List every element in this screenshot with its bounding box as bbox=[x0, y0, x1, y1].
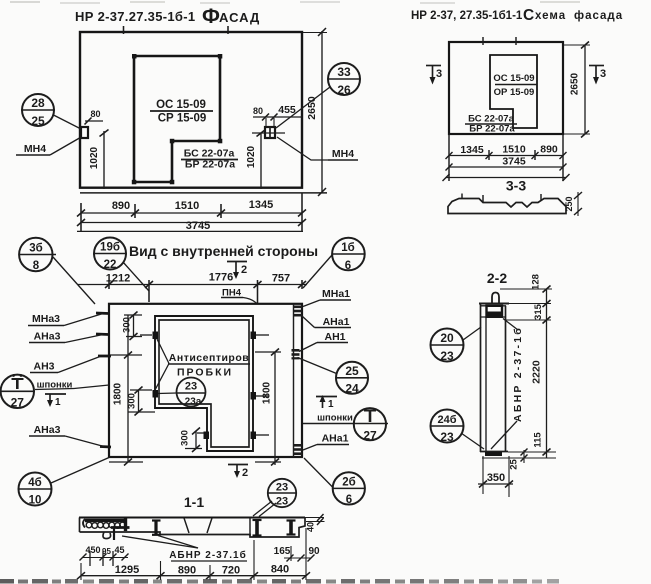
svg-text:24б: 24б bbox=[437, 414, 456, 426]
svg-text:1020: 1020 bbox=[246, 145, 257, 168]
svg-text:25: 25 bbox=[345, 364, 359, 378]
svg-text:хема: хема bbox=[535, 10, 566, 22]
svg-text:3б: 3б bbox=[29, 243, 43, 255]
svg-text:ОС 15-09: ОС 15-09 bbox=[493, 73, 534, 84]
svg-text:757: 757 bbox=[272, 273, 290, 285]
svg-text:3745: 3745 bbox=[186, 220, 210, 232]
svg-text:1345: 1345 bbox=[249, 199, 273, 211]
svg-text:25: 25 bbox=[31, 114, 45, 128]
svg-text:1295: 1295 bbox=[115, 564, 139, 576]
svg-text:1800: 1800 bbox=[262, 381, 273, 404]
svg-text:1-1: 1-1 bbox=[184, 494, 204, 510]
svg-text:С: С bbox=[523, 7, 534, 24]
svg-text:23: 23 bbox=[276, 496, 288, 508]
svg-text:300: 300 bbox=[122, 317, 133, 333]
svg-text:АНа1: АНа1 bbox=[322, 433, 349, 445]
svg-text:165: 165 bbox=[274, 546, 291, 557]
svg-text:25: 25 bbox=[509, 459, 520, 470]
svg-text:1776: 1776 bbox=[209, 272, 233, 284]
svg-text:450: 450 bbox=[85, 545, 100, 555]
svg-text:128: 128 bbox=[531, 274, 542, 290]
svg-text:АБНР 2-37-1б: АБНР 2-37-1б bbox=[512, 326, 524, 422]
svg-text:40: 40 bbox=[306, 522, 316, 532]
svg-text:3745: 3745 bbox=[502, 156, 526, 168]
svg-text:720: 720 bbox=[222, 565, 240, 577]
svg-text:80: 80 bbox=[253, 106, 263, 116]
svg-text:300: 300 bbox=[127, 393, 138, 409]
svg-text:НР 2-37.27.35-1б-1: НР 2-37.27.35-1б-1 bbox=[75, 9, 195, 24]
svg-text:6: 6 bbox=[346, 494, 352, 506]
svg-text:1510: 1510 bbox=[175, 200, 199, 212]
svg-text:10: 10 bbox=[29, 495, 42, 507]
svg-text:1212: 1212 bbox=[106, 273, 130, 285]
svg-text:МНа1: МНа1 bbox=[322, 288, 350, 300]
svg-text:3: 3 bbox=[436, 68, 442, 80]
svg-text:АБНР 2-37.1б: АБНР 2-37.1б bbox=[169, 549, 247, 561]
svg-text:23: 23 bbox=[276, 482, 288, 494]
svg-text:23а: 23а bbox=[185, 397, 202, 408]
svg-text:23: 23 bbox=[440, 430, 454, 444]
svg-text:1510: 1510 bbox=[502, 144, 526, 156]
svg-text:МН4: МН4 bbox=[24, 143, 46, 155]
svg-text:26: 26 bbox=[337, 83, 351, 97]
svg-text:2б: 2б bbox=[342, 477, 356, 489]
svg-text:2220: 2220 bbox=[531, 360, 543, 384]
svg-text:ОС 15-09: ОС 15-09 bbox=[156, 99, 206, 111]
svg-text:19б: 19б bbox=[100, 242, 120, 254]
svg-text:6: 6 bbox=[345, 260, 351, 272]
svg-text:Вид с внутренней стороны: Вид с внутренней стороны bbox=[129, 243, 318, 259]
svg-text:27: 27 bbox=[363, 429, 377, 443]
svg-text:23: 23 bbox=[185, 381, 197, 393]
svg-text:33: 33 bbox=[337, 65, 351, 79]
svg-text:23: 23 bbox=[440, 349, 454, 363]
svg-text:4б: 4б bbox=[28, 477, 42, 489]
svg-text:22: 22 bbox=[104, 259, 117, 271]
svg-text:АН1: АН1 bbox=[324, 331, 345, 343]
svg-text:3: 3 bbox=[600, 68, 606, 80]
svg-text:БР 22-07а: БР 22-07а bbox=[469, 124, 515, 135]
svg-text:АНа3: АНа3 bbox=[34, 331, 61, 343]
svg-text:350: 350 bbox=[487, 472, 505, 484]
svg-text:1б: 1б bbox=[341, 242, 355, 254]
svg-text:1345: 1345 bbox=[460, 144, 484, 156]
svg-text:28: 28 bbox=[31, 96, 45, 110]
svg-text:шпонки: шпонки bbox=[317, 413, 353, 424]
svg-text:890: 890 bbox=[540, 144, 558, 156]
svg-text:840: 840 bbox=[271, 564, 289, 576]
svg-text:МН4: МН4 bbox=[332, 148, 354, 160]
svg-text:АНа1: АНа1 bbox=[323, 316, 350, 328]
svg-text:1020: 1020 bbox=[89, 146, 100, 169]
svg-text:24: 24 bbox=[345, 382, 359, 396]
svg-text:3-3: 3-3 bbox=[506, 178, 526, 194]
svg-text:СР 15-09: СР 15-09 bbox=[158, 113, 207, 125]
svg-text:фасада: фасада bbox=[574, 10, 623, 22]
svg-text:МНа3: МНа3 bbox=[32, 313, 60, 325]
svg-text:890: 890 bbox=[112, 200, 130, 212]
svg-text:1: 1 bbox=[55, 397, 61, 408]
svg-text:115: 115 bbox=[533, 432, 544, 448]
svg-text:2: 2 bbox=[242, 467, 248, 479]
svg-text:890: 890 bbox=[178, 565, 196, 577]
svg-text:Антисептиров: Антисептиров bbox=[169, 352, 249, 364]
svg-text:НР 2-37, 27.35-1б1-1: НР 2-37, 27.35-1б1-1 bbox=[411, 10, 523, 22]
svg-text:Ф: Ф bbox=[202, 5, 220, 28]
svg-text:АНа3: АНа3 bbox=[34, 424, 61, 436]
svg-text:АСАД: АСАД bbox=[219, 10, 260, 25]
svg-text:2: 2 bbox=[241, 264, 247, 276]
svg-text:1800: 1800 bbox=[113, 382, 124, 405]
svg-text:ОР 15-09: ОР 15-09 bbox=[494, 87, 535, 98]
svg-text:8: 8 bbox=[33, 260, 40, 272]
svg-text:2650: 2650 bbox=[570, 72, 581, 95]
svg-text:27: 27 bbox=[11, 396, 25, 410]
svg-text:2-2: 2-2 bbox=[487, 270, 507, 286]
svg-text:250: 250 bbox=[564, 196, 574, 211]
svg-text:80: 80 bbox=[90, 109, 100, 119]
svg-text:2650: 2650 bbox=[306, 96, 318, 120]
svg-text:315: 315 bbox=[533, 303, 544, 320]
svg-text:1: 1 bbox=[328, 399, 334, 410]
svg-text:АН3: АН3 bbox=[33, 361, 54, 373]
svg-text:ПРОБКИ: ПРОБКИ bbox=[177, 367, 233, 379]
svg-text:300: 300 bbox=[180, 430, 191, 446]
svg-text:20: 20 bbox=[440, 331, 454, 345]
